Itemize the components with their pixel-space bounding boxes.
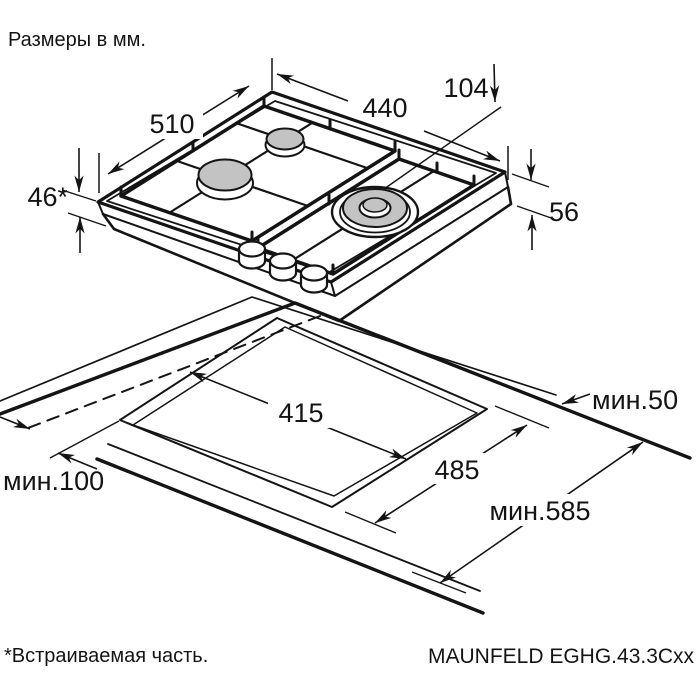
- dim-label-46: 46*: [27, 182, 68, 212]
- dim-label-min50: мин.50: [592, 385, 678, 415]
- dim-label-485: 485: [434, 455, 479, 485]
- worktop-front-band: [97, 459, 483, 613]
- burner-medium: [197, 160, 253, 200]
- ext-46-bottom: [68, 213, 106, 226]
- dim-label-56: 56: [549, 197, 579, 227]
- model-number: MAUNFELD EGHG.43.3Cxx: [428, 645, 695, 668]
- dim-label-440: 440: [362, 93, 407, 123]
- worktop-cutout-view: [0, 297, 690, 613]
- leader-min50: [562, 394, 590, 404]
- burner-small: [266, 129, 305, 157]
- knob-middle: [270, 254, 296, 281]
- ext-min100: [50, 421, 119, 458]
- installation-drawing-page: 510 440 104 46* 56: [0, 0, 700, 700]
- hob-projection-line: [0, 297, 556, 401]
- burner-wok: [332, 187, 418, 237]
- dim-arrow-104: [494, 64, 495, 102]
- ext-485-top: [495, 406, 549, 428]
- knob-left: [239, 242, 265, 269]
- page-title: Размеры в мм.: [8, 29, 146, 51]
- dim-arrow-min100-a: [0, 417, 30, 429]
- worktop-front-edge: [108, 444, 480, 591]
- footnote-builtin-part: *Встраиваемая часть.: [4, 645, 208, 667]
- dim-label-min585: мин.585: [489, 496, 590, 526]
- dim-label-510: 510: [149, 109, 194, 139]
- installation-diagram: 510 440 104 46* 56: [0, 0, 700, 700]
- knob-right: [301, 266, 327, 293]
- dim-label-104: 104: [443, 73, 488, 103]
- dim-label-415: 415: [278, 398, 323, 428]
- dim-label-min100: мин.100: [3, 466, 104, 496]
